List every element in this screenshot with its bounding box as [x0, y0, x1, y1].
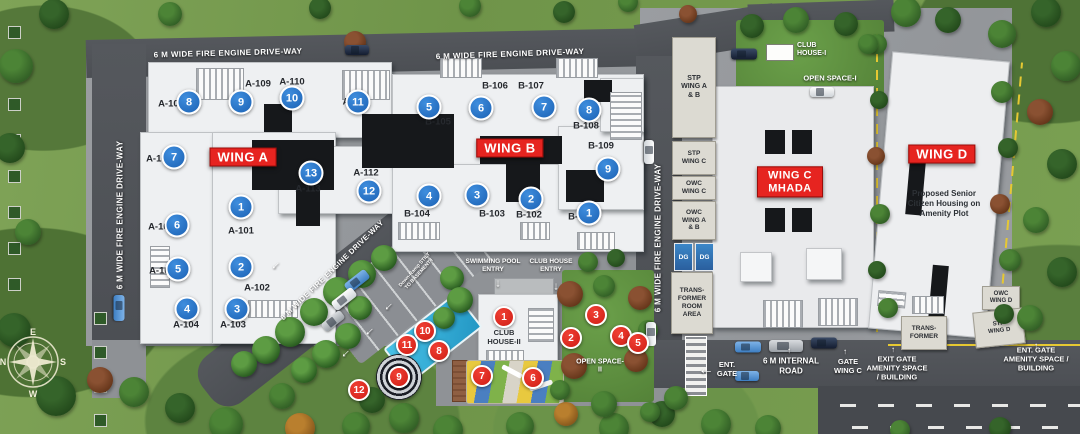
tree	[640, 402, 660, 422]
amenity-marker: 10	[414, 320, 436, 342]
amenity-marker: 6	[522, 367, 544, 389]
unit-marker: 5	[166, 257, 191, 282]
tree	[285, 413, 315, 434]
tree	[1023, 207, 1049, 233]
transformer-room-label: TRANS-FORMER ROOM AREA	[675, 287, 709, 318]
wing-c-tag: WING C MHADA	[757, 166, 823, 197]
ent-gate-label: ENT. GATE	[712, 360, 742, 378]
unit-marker: 4	[417, 184, 442, 209]
tree	[935, 7, 961, 33]
tree	[578, 252, 598, 272]
club-house-entry-label: CLUB HOUSE ENTRY	[521, 258, 581, 274]
tree	[591, 391, 617, 417]
dg-box: DG	[674, 243, 693, 271]
tree	[554, 402, 578, 426]
lane-dashes	[852, 426, 1080, 429]
unit-code-label: B-109	[588, 141, 614, 152]
unit-marker: 8	[177, 90, 202, 115]
unit-code-label: A-101	[228, 226, 254, 237]
tree	[679, 5, 697, 23]
tree	[994, 304, 1014, 324]
tree	[1051, 51, 1080, 81]
tree	[0, 133, 25, 163]
dg-box: DG	[695, 243, 714, 271]
car	[769, 340, 803, 352]
palm-tree	[371, 245, 397, 271]
tree	[628, 286, 652, 310]
entry-arrow: ↓	[495, 279, 501, 290]
amenity-marker: 3	[585, 304, 607, 326]
tree	[39, 0, 69, 29]
dg-label: DG	[700, 254, 710, 261]
transformer-label: TRANS-FORMER	[906, 325, 942, 341]
hedge-plot	[94, 346, 107, 359]
open-space-2-label: OPEN SPACE-II	[575, 359, 625, 376]
gate-wing-c-label: GATE WING C	[828, 357, 868, 375]
entry-arrow: ↓	[553, 282, 559, 293]
unit-marker: 8	[577, 98, 602, 123]
club-house-2-room	[528, 308, 554, 342]
hedge-plot	[8, 26, 21, 39]
amenity-marker: 1	[493, 306, 515, 328]
tree	[858, 34, 878, 54]
hedge-plot	[8, 278, 21, 291]
compass-w: W	[29, 389, 38, 398]
tree	[755, 415, 781, 434]
wing-c-window	[792, 208, 812, 232]
balcony-stripes	[398, 222, 440, 240]
amenity-marker: 5	[627, 332, 649, 354]
palm-tree	[275, 317, 305, 347]
palm-tree	[433, 307, 455, 329]
wing-c-annex	[740, 252, 772, 282]
unit-code-label: A-112	[353, 168, 378, 179]
unit-marker: 2	[519, 187, 544, 212]
stp-wing-ab-label: STP WING A & B	[679, 75, 709, 100]
balcony-stripes	[818, 298, 858, 326]
compass-n: N	[0, 357, 6, 367]
tree	[783, 7, 809, 33]
palm-tree	[291, 357, 317, 383]
hedge-plot	[8, 98, 21, 111]
car	[735, 342, 761, 353]
tree	[870, 204, 890, 224]
hedge-plot	[8, 170, 21, 183]
ent-gate-arrow: ←	[698, 362, 714, 378]
tree	[999, 249, 1021, 271]
unit-code-label: A-102	[244, 283, 270, 294]
unit-marker: 2	[229, 255, 254, 280]
amenity-marker: 9	[388, 366, 410, 388]
road-width-arrow: ↑	[891, 346, 895, 354]
tree	[740, 14, 764, 38]
amenity-marker: 8	[428, 340, 450, 362]
compass-e: E	[30, 327, 36, 337]
unit-marker: 6	[469, 96, 494, 121]
club-house-1-swatch	[766, 44, 794, 61]
amenity-marker: 12	[348, 379, 370, 401]
transformer-room-box: TRANS-FORMER ROOM AREA	[671, 272, 713, 334]
car	[644, 140, 654, 164]
exit-gate-amenity-label: EXIT GATE AMENITY SPACE / BUILDING	[865, 355, 929, 382]
car	[810, 87, 834, 97]
wing-c-building	[712, 86, 874, 328]
tree	[557, 281, 583, 307]
balcony-stripes	[440, 58, 482, 78]
tree	[433, 415, 463, 434]
club-house-2-label: CLUB HOUSE-II	[479, 328, 529, 346]
balcony-stripes	[577, 232, 615, 250]
tree	[1047, 149, 1077, 179]
unit-code-label: B-107	[518, 81, 544, 92]
tree	[867, 147, 885, 165]
wing-c-window	[765, 130, 785, 154]
car	[114, 295, 125, 321]
hedge-plot	[8, 242, 21, 255]
tree	[459, 0, 481, 17]
tree	[389, 403, 419, 433]
transformer-box: TRANS-FORMER	[901, 316, 947, 350]
tree	[209, 407, 243, 434]
hedge-plot	[94, 312, 107, 325]
road-width-arrow: ↑	[843, 348, 847, 356]
internal-road-label: 6 M INTERNAL ROAD	[755, 356, 827, 375]
owc-wing-d-label: OWC WING D	[988, 291, 1014, 305]
fire-driveway-label: 6 M WIDE FIRE ENGINE DRIVE-WAY	[116, 141, 125, 290]
tree	[990, 194, 1010, 214]
open-space-1-label: OPEN SPACE-I	[803, 74, 856, 83]
balcony-stripes	[610, 92, 642, 140]
tree	[998, 138, 1018, 158]
tree	[342, 412, 370, 434]
owc-wing-ab-box: OWC WING A & B	[672, 201, 716, 240]
unit-marker: 7	[532, 95, 557, 120]
car	[345, 45, 369, 55]
owc-wing-ab-label: OWC WING A & B	[680, 209, 708, 232]
unit-marker: 6	[165, 213, 190, 238]
tree	[991, 81, 1013, 103]
unit-marker: 9	[596, 157, 621, 182]
balcony-stripes	[763, 300, 803, 328]
palm-tree	[231, 351, 257, 377]
unit-marker: 1	[229, 195, 254, 220]
tree	[553, 1, 575, 23]
hedge-plot	[94, 414, 107, 427]
tree	[269, 383, 295, 409]
tree	[593, 275, 615, 297]
unit-marker: 13	[299, 161, 324, 186]
palm-tree	[312, 340, 340, 368]
wing-c-window	[765, 208, 785, 232]
tree	[701, 409, 731, 434]
tree	[618, 0, 638, 12]
stp-wing-c-box: STP WING C	[672, 141, 716, 175]
compass-rose: E S W N	[0, 326, 69, 398]
tree	[165, 393, 195, 423]
tree	[1017, 305, 1043, 331]
unit-marker: 9	[229, 90, 254, 115]
wing-a-tag: WING A	[210, 148, 277, 167]
tree	[158, 2, 182, 26]
balcony-stripes	[556, 58, 598, 78]
stp-wing-ab-box: STP WING A & B	[672, 37, 716, 138]
amenity-marker: 2	[560, 327, 582, 349]
tree	[550, 380, 570, 400]
road-width-arrow: ↑	[787, 347, 791, 355]
unit-code-label: B-104	[404, 209, 430, 220]
tree	[890, 420, 910, 434]
tree	[834, 12, 858, 36]
wing-b-tag: WING B	[476, 139, 543, 158]
dg-label: DG	[679, 254, 689, 261]
fire-driveway-label: 6 M WIDE FIRE ENGINE DRIVE-WAY	[654, 164, 663, 313]
tree	[119, 377, 149, 407]
unit-marker: 10	[280, 86, 305, 111]
unit-code-label: A-103	[220, 320, 246, 331]
tree	[15, 219, 41, 245]
wing-d-note: Proposed Senior Citizen Housing on Ameni…	[907, 189, 981, 219]
unit-marker: 5	[417, 95, 442, 120]
tree	[1047, 257, 1077, 287]
tree	[870, 91, 888, 109]
slide	[501, 364, 523, 379]
road-width-arrow: ↑	[1034, 342, 1038, 350]
unit-marker: 4	[175, 297, 200, 322]
tree	[309, 0, 331, 19]
car	[811, 338, 837, 349]
unit-code-label: B-103	[479, 209, 505, 220]
amenity-marker: 7	[471, 365, 493, 387]
swimming-pool-entry-label: SWIMMING POOL ENTRY	[463, 258, 523, 274]
tree	[607, 249, 625, 267]
tree	[87, 367, 113, 393]
unit-marker: 1	[577, 201, 602, 226]
hedge-plot	[8, 206, 21, 219]
amenity-marker: 11	[396, 334, 418, 356]
tree	[506, 412, 534, 434]
wing-c-annex	[806, 248, 842, 280]
unit-code-label: A-109	[245, 79, 271, 90]
unit-marker: 7	[162, 145, 187, 170]
tree	[1031, 0, 1061, 27]
tree	[868, 261, 886, 279]
compass-s: S	[60, 357, 66, 367]
tree	[989, 417, 1011, 434]
wing-c-window	[792, 130, 812, 154]
lane-dashes	[840, 404, 1080, 407]
tree	[1027, 99, 1053, 125]
tree	[0, 49, 33, 83]
unit-marker: 3	[225, 297, 250, 322]
club-house-1-label: CLUB HOUSE-I	[797, 42, 839, 59]
stp-wing-c-label: STP WING C	[680, 150, 708, 166]
tree	[664, 386, 688, 410]
owc-wing-c-label: OWC WING C	[680, 180, 708, 196]
unit-code-label: B-106	[482, 81, 508, 92]
unit-marker: 3	[465, 183, 490, 208]
wing-d-tag: WING D	[908, 145, 975, 164]
tree	[878, 298, 898, 318]
unit-marker: 11	[346, 90, 371, 115]
owc-wing-c-box: OWC WING C	[672, 176, 716, 200]
tree	[988, 20, 1016, 48]
car	[731, 49, 757, 60]
balcony-stripes	[520, 222, 550, 240]
site-plan: STP WING A & B STP WING C OWC WING C OWC…	[0, 0, 1080, 434]
unit-marker: 12	[357, 179, 382, 204]
balcony-stripes	[912, 296, 944, 314]
